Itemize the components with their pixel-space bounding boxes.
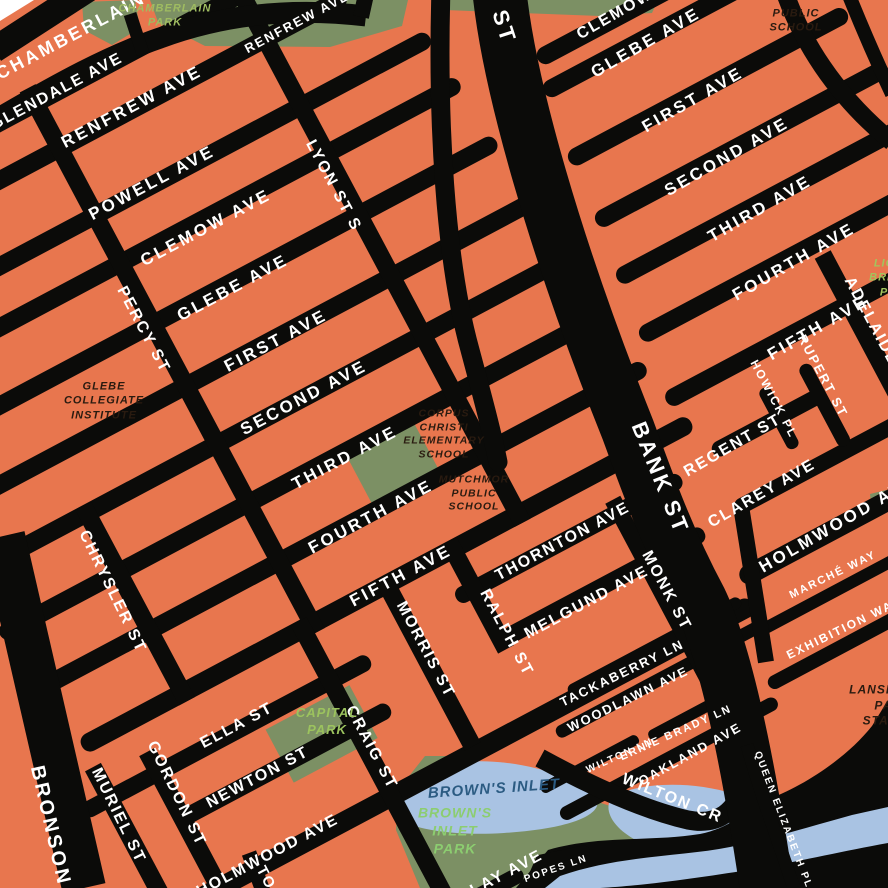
glebe-map-poster: CHAMBERLAINGLENDALE AVERENFREW AVERENFRE… — [0, 0, 888, 888]
chamberlain-jog — [361, 0, 367, 17]
map-graphics — [0, 0, 888, 888]
